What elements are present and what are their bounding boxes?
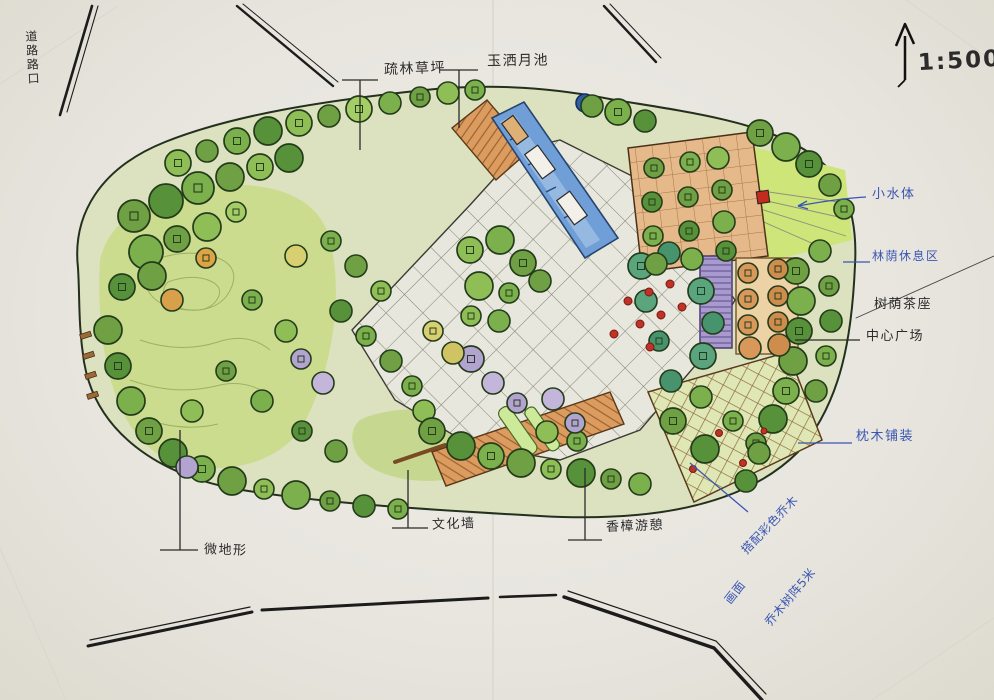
central-plaza-label: 中心广场 [866,330,924,343]
north-arrow-icon [896,24,914,87]
landscape-plan-scan: 道路路口 疏林草坪 玉洒月池 1:500 小水体 林荫休息区 树荫茶座 中心广场… [0,0,994,700]
red-sculpture [756,190,770,204]
small-water-label: 小水体 [872,188,916,201]
micro-terrain-label: 微地形 [204,543,248,558]
sleeper-paving-label: 枕木铺装 [856,430,914,443]
corner-road-label: 道路路口 [25,30,40,87]
tree-shade-seats-label: 树荫茶座 [874,298,932,311]
culture-wall-label: 文化墙 [432,517,476,532]
shade-rest-label: 林荫休息区 [872,250,940,262]
moon-pool-label: 玉洒月池 [487,53,549,68]
sparse-woods-lawn-label: 疏林草坪 [384,61,446,77]
scale-text: 1:500 [917,48,994,75]
camphor-rest-label: 香樟游憩 [606,519,664,534]
plan-drawing [0,0,994,700]
